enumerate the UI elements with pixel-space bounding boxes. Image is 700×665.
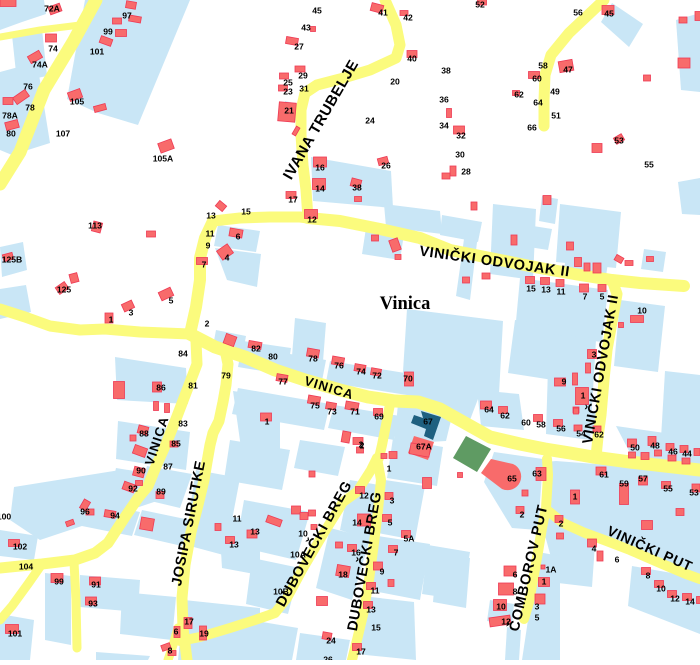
svg-text:42: 42 [403,13,413,23]
svg-text:5: 5 [535,613,540,623]
svg-text:6: 6 [174,627,179,637]
svg-text:11: 11 [556,287,565,297]
svg-text:1: 1 [265,417,270,427]
svg-text:19: 19 [199,629,209,639]
svg-text:69: 69 [374,412,384,422]
svg-text:1: 1 [387,464,392,474]
svg-text:7: 7 [202,260,207,270]
svg-text:13: 13 [250,527,260,537]
svg-text:1A: 1A [546,565,557,575]
svg-text:94: 94 [110,511,120,521]
svg-text:9: 9 [380,567,385,577]
svg-text:5: 5 [600,292,605,302]
svg-text:43: 43 [301,23,311,33]
svg-text:13: 13 [541,285,551,295]
svg-text:56: 56 [573,8,583,18]
svg-text:79: 79 [221,371,231,381]
svg-text:49: 49 [550,87,560,97]
svg-text:28: 28 [461,167,471,177]
svg-text:2: 2 [205,319,210,329]
svg-text:9: 9 [562,377,567,387]
svg-text:4: 4 [225,253,230,263]
svg-text:3: 3 [535,602,540,612]
svg-text:10: 10 [656,584,666,594]
svg-text:45: 45 [604,9,614,19]
svg-text:76: 76 [334,361,344,371]
svg-text:12: 12 [670,594,680,604]
svg-text:97: 97 [122,11,132,21]
svg-text:17: 17 [184,617,194,627]
svg-text:12: 12 [307,215,317,225]
svg-text:78: 78 [308,354,318,364]
svg-text:6: 6 [615,555,620,565]
svg-text:92: 92 [128,484,138,494]
svg-text:67: 67 [423,417,433,427]
svg-text:64: 64 [484,405,494,415]
svg-text:18: 18 [338,570,348,580]
svg-text:41: 41 [378,8,388,18]
svg-text:125: 125 [57,285,72,295]
svg-text:46: 46 [668,447,678,457]
svg-text:53: 53 [689,488,699,498]
svg-text:32: 32 [456,131,466,141]
svg-text:10: 10 [637,306,647,316]
svg-text:80: 80 [6,129,16,139]
svg-text:80: 80 [268,352,278,362]
svg-text:64: 64 [533,98,543,108]
svg-text:93: 93 [88,599,98,609]
svg-text:78A: 78A [2,111,18,121]
svg-text:57: 57 [638,474,648,484]
svg-text:60: 60 [532,74,542,84]
svg-text:6: 6 [236,232,241,242]
svg-text:101: 101 [90,47,105,57]
svg-text:21: 21 [284,106,294,116]
svg-text:38: 38 [352,183,362,193]
svg-text:11: 11 [205,229,214,239]
svg-text:75: 75 [310,401,320,411]
svg-text:5A: 5A [404,534,415,544]
svg-text:50: 50 [630,443,640,453]
svg-text:59: 59 [619,479,629,489]
svg-text:74: 74 [356,367,366,377]
svg-text:91: 91 [91,580,101,590]
svg-text:66: 66 [527,123,537,133]
svg-text:62: 62 [500,411,510,421]
svg-text:53: 53 [614,136,624,146]
svg-text:56: 56 [556,424,566,434]
svg-text:70: 70 [403,374,413,384]
svg-text:1: 1 [542,577,547,587]
svg-text:5: 5 [169,296,174,306]
svg-text:31: 31 [299,84,309,94]
svg-text:16: 16 [315,163,325,173]
svg-text:6: 6 [513,570,518,580]
svg-text:2: 2 [360,441,365,451]
svg-text:13: 13 [206,211,216,221]
svg-text:60: 60 [521,418,531,428]
svg-text:52: 52 [475,0,485,10]
svg-text:71: 71 [350,407,360,417]
svg-text:26: 26 [381,161,391,171]
svg-text:5: 5 [388,518,393,528]
svg-text:55: 55 [663,484,673,494]
svg-text:3: 3 [390,496,395,506]
svg-text:11: 11 [370,586,379,596]
svg-text:74A: 74A [32,60,48,70]
svg-text:78: 78 [25,103,35,113]
svg-text:76: 76 [23,82,33,92]
svg-text:72A: 72A [44,4,60,14]
svg-text:20: 20 [390,77,400,87]
svg-text:26: 26 [323,655,333,661]
svg-text:15: 15 [371,623,381,633]
svg-text:17: 17 [288,195,298,205]
svg-text:38: 38 [441,66,451,76]
svg-text:48: 48 [650,441,660,451]
svg-text:2: 2 [559,519,564,529]
svg-text:85: 85 [171,439,181,449]
svg-text:13: 13 [229,540,239,550]
svg-text:102: 102 [13,542,28,552]
svg-text:101: 101 [8,629,23,639]
svg-text:1: 1 [573,492,578,502]
svg-text:58: 58 [538,61,548,71]
svg-text:9: 9 [206,241,211,251]
svg-text:99: 99 [54,577,64,587]
svg-text:65: 65 [507,474,517,484]
svg-text:40: 40 [407,54,417,64]
svg-text:58: 58 [536,420,546,430]
svg-text:11: 11 [232,514,241,524]
svg-text:107: 107 [56,129,71,139]
svg-text:77: 77 [278,377,288,387]
svg-text:24: 24 [365,116,375,126]
svg-text:62: 62 [514,90,524,100]
svg-text:13: 13 [366,605,376,615]
svg-text:73: 73 [327,407,337,417]
svg-text:86: 86 [156,383,166,393]
svg-text:17: 17 [356,647,366,657]
svg-text:36: 36 [439,95,449,105]
svg-text:105: 105 [70,97,85,107]
svg-text:8: 8 [168,646,173,656]
svg-text:96: 96 [80,507,90,517]
svg-text:105A: 105A [153,154,174,164]
svg-text:83: 83 [178,419,188,429]
svg-text:81: 81 [188,381,198,391]
svg-text:27: 27 [294,42,304,52]
svg-text:104: 104 [19,562,34,572]
svg-text:61: 61 [599,470,609,480]
svg-text:47: 47 [563,65,573,75]
svg-text:99: 99 [103,27,113,37]
svg-text:74: 74 [48,44,58,54]
svg-text:84: 84 [178,349,188,359]
svg-text:51: 51 [551,111,561,121]
svg-text:23: 23 [283,87,293,97]
svg-text:14: 14 [315,184,325,194]
svg-text:14: 14 [352,518,362,528]
svg-text:55: 55 [644,160,654,170]
svg-text:113: 113 [88,221,102,231]
svg-text:4: 4 [592,544,597,554]
svg-text:15: 15 [241,207,251,217]
svg-text:44: 44 [682,449,692,459]
svg-text:10: 10 [298,529,308,539]
svg-text:3: 3 [129,308,134,318]
svg-text:45: 45 [312,6,322,16]
svg-text:24: 24 [326,636,336,646]
svg-text:72: 72 [372,371,382,381]
svg-text:7: 7 [583,292,588,302]
svg-text:34: 34 [439,121,449,131]
svg-text:Vinica: Vinica [380,294,431,314]
svg-text:15: 15 [526,284,536,294]
svg-text:29: 29 [298,71,308,81]
svg-text:88: 88 [139,429,149,439]
svg-text:82: 82 [251,344,261,354]
svg-text:90: 90 [136,466,146,476]
svg-text:2: 2 [520,510,525,520]
svg-text:63: 63 [532,469,542,479]
svg-text:100: 100 [0,512,11,522]
svg-text:8: 8 [646,571,651,581]
svg-text:30: 30 [455,150,465,160]
svg-text:7: 7 [394,548,399,558]
svg-text:67A: 67A [416,442,432,452]
svg-text:125B: 125B [2,255,23,265]
svg-text:10: 10 [496,602,506,612]
svg-text:14: 14 [685,597,695,607]
svg-text:89: 89 [156,487,166,497]
svg-text:1: 1 [581,391,586,401]
svg-text:87: 87 [163,462,173,472]
svg-text:1: 1 [109,315,114,325]
